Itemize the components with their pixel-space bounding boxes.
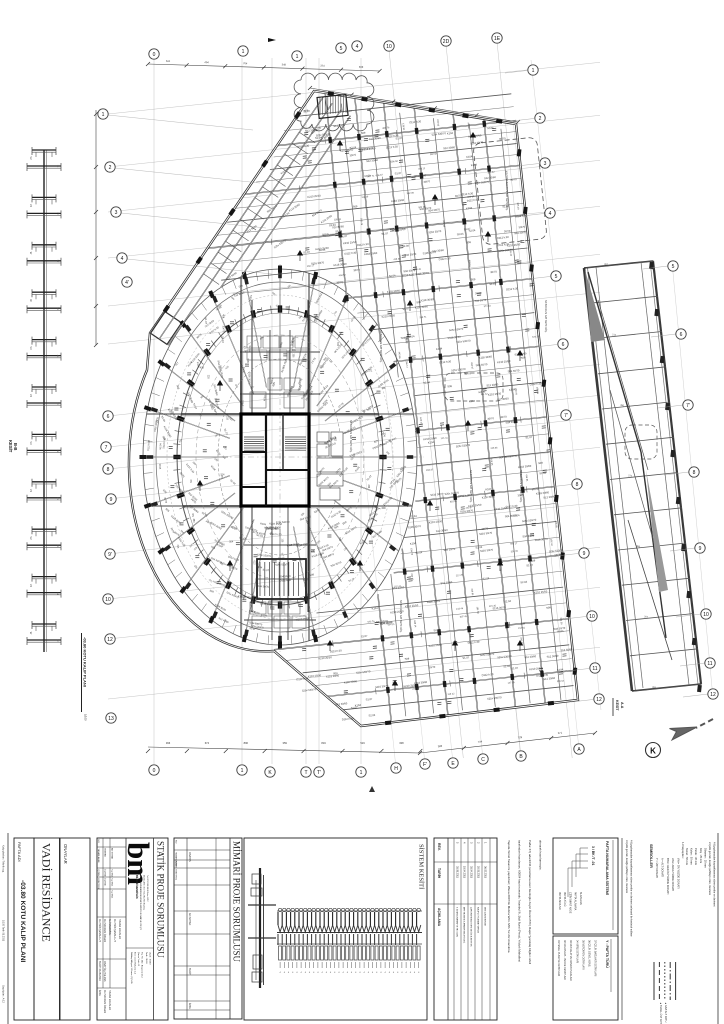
svg-text:12: 12 xyxy=(710,692,716,698)
svg-text:S1.07: S1.07 xyxy=(243,346,246,353)
svg-text:6: 6 xyxy=(562,342,565,348)
svg-text:-03.80 KOTU KALIP PLANI: -03.80 KOTU KALIP PLANI xyxy=(19,880,26,962)
svg-text:BİLİM MÜHENDİSLİK: BİLİM MÜHENDİSLİK xyxy=(135,875,138,899)
svg-text:S1.07: S1.07 xyxy=(511,666,519,671)
svg-text:öYö= ÖN YÜZDE DONATI: öYö= ÖN YÜZDE DONATI xyxy=(677,858,681,889)
svg-text:TARİH: TARİH xyxy=(188,968,191,975)
svg-text:VADİ RESİDANCE: VADİ RESİDANCE xyxy=(40,843,54,942)
svg-text:9: 9 xyxy=(583,551,586,557)
svg-text:KESİT: KESİT xyxy=(615,700,619,711)
svg-text:03.04.2013: 03.04.2013 xyxy=(470,866,473,879)
svg-text:Sayı/çizim : A-12: Sayı/çizim : A-12 xyxy=(2,985,5,1003)
svg-text:K104: K104 xyxy=(436,346,443,351)
svg-text:1: 1 xyxy=(241,768,244,774)
svg-text:8: 8 xyxy=(693,470,696,476)
svg-text:K104: K104 xyxy=(371,606,378,611)
svg-text:6: 6 xyxy=(680,332,683,338)
svg-text:MİMARİ PROJE SORUMLUSU: MİMARİ PROJE SORUMLUSU xyxy=(232,841,242,963)
svg-text:10: 10 xyxy=(589,614,595,620)
svg-text:NO: NO xyxy=(175,840,177,844)
svg-text:30/70: 30/70 xyxy=(336,280,343,285)
svg-text:S2.04: S2.04 xyxy=(368,713,376,718)
svg-text:30.03.2013: 30.03.2013 xyxy=(477,866,480,879)
svg-text:STATİK PROJE SORUMLUSU: STATİK PROJE SORUMLUSU xyxy=(156,841,166,958)
svg-text:Dikilitaş Mah. Eren Sok. No:26: Dikilitaş Mah. Eren Sok. No:26/1 Beşikta… xyxy=(143,875,146,910)
svg-text:A = ALT DONATI: A = ALT DONATI xyxy=(660,858,664,878)
svg-text:S1.07: S1.07 xyxy=(526,563,534,568)
svg-text:Tg. Müh.: Tg. Müh. xyxy=(111,890,113,899)
svg-text:S2 BODRUM KAT 30/70 DÖŞ.: S2 BODRUM KAT 30/70 DÖŞ. xyxy=(399,600,402,633)
svg-text:S1.07: S1.07 xyxy=(462,655,470,660)
svg-text:ONAYAN: ONAYAN xyxy=(188,852,191,862)
svg-text:5: 5 xyxy=(555,274,558,280)
svg-text:1: 1 xyxy=(532,68,535,74)
svg-text:S2 BODRUM KAT 30/70 DÖŞ.: S2 BODRUM KAT 30/70 DÖŞ. xyxy=(469,470,472,503)
svg-text:525x 530/70: 525x 530/70 xyxy=(275,563,289,566)
svg-text:359: 359 xyxy=(283,741,288,745)
svg-text:7': 7' xyxy=(686,403,690,409)
svg-text:S2.04: S2.04 xyxy=(335,229,343,234)
svg-text:4-Uygulamadan kaynaklanması sü: 4-Uygulamadan kaynaklanması süren yerlit… xyxy=(713,842,717,907)
svg-text:tarafından hazırlanan, 60004: tarafından hazırlanan, 60004 kayıt numar… xyxy=(518,840,523,962)
svg-text:İnş.Müh.: İnş.Müh. xyxy=(104,878,107,887)
svg-text:7: 7 xyxy=(105,445,108,451)
svg-text:06 ÇELİK GENEL KONS.: 06 ÇELİK GENEL KONS. xyxy=(588,940,591,967)
svg-text:KONTROL: KONTROL xyxy=(97,879,99,890)
svg-text:HAKAN ERENLER: HAKAN ERENLER xyxy=(108,990,111,1010)
svg-text:AD SOYAD: AD SOYAD xyxy=(188,913,191,925)
svg-text:30/70: 30/70 xyxy=(423,179,430,184)
svg-text:K: K xyxy=(650,747,656,756)
svg-text:MRT.TA KAVŞ.K ARMUR KELESİ DEĞ: MRT.TA KAVŞ.K ARMUR KELESİ DEĞ. xyxy=(463,907,466,944)
svg-text:İnş.Müh.: İnş.Müh. xyxy=(104,869,107,878)
svg-text:S1.07: S1.07 xyxy=(381,231,389,236)
svg-text:338: 338 xyxy=(399,741,404,745)
svg-text:Döşeme : 20 mm: Döşeme : 20 mm xyxy=(703,848,707,868)
svg-text:S1.07: S1.07 xyxy=(402,306,410,311)
svg-text:ALİ SAMAVİOL: ALİ SAMAVİOL xyxy=(108,919,111,936)
svg-text:S1.07: S1.07 xyxy=(525,435,533,440)
svg-text:S1.07: S1.07 xyxy=(489,281,497,286)
svg-text:S1.07: S1.07 xyxy=(395,136,403,141)
svg-text:PAFTA NUMARA: PAFTA NUMARA xyxy=(574,892,577,911)
svg-text:896: 896 xyxy=(244,741,249,745)
svg-text:S2.04: S2.04 xyxy=(433,628,441,633)
svg-text:ÇİZEN: ÇİZEN xyxy=(175,862,178,869)
svg-text:S2.04: S2.04 xyxy=(318,247,326,252)
svg-text:13: 13 xyxy=(108,716,114,722)
svg-text:Kiriş : 25 mm: Kiriş : 25 mm xyxy=(699,848,703,863)
svg-text:ANKARA MÜHENDİSLİK HİZMETLERİ: ANKARA MÜHENDİSLİK HİZMETLERİ PROJE SAN.… xyxy=(139,875,142,930)
svg-text:S2.04: S2.04 xyxy=(410,514,418,519)
svg-text:S116 30/70: S116 30/70 xyxy=(248,372,251,385)
svg-text:K104: K104 xyxy=(485,487,492,492)
svg-text:S2.04: S2.04 xyxy=(503,664,511,669)
svg-text:K104: K104 xyxy=(410,541,417,546)
svg-text:1/100 Tarih 05.2013: 1/100 Tarih 05.2013 xyxy=(2,920,5,942)
svg-text:9: 9 xyxy=(699,546,702,552)
svg-text:03.08.2011: 03.08.2011 xyxy=(456,866,459,878)
svg-text:V2: V2 xyxy=(29,536,33,540)
svg-text:Perde : 30 mm: Perde : 30 mm xyxy=(694,848,698,865)
svg-text:7': 7' xyxy=(564,413,568,419)
svg-text:S1.07: S1.07 xyxy=(394,171,402,176)
svg-text:12: 12 xyxy=(596,697,602,703)
svg-text:D112 h:30: D112 h:30 xyxy=(280,579,292,582)
svg-text:S04 30/70: S04 30/70 xyxy=(270,526,282,530)
svg-text:MUHARREM ÖZGEN: MUHARREM ÖZGEN xyxy=(103,919,106,943)
svg-text:519: 519 xyxy=(360,741,365,745)
svg-text:03 KAT KALIP VE DONATI PLANLAR: 03 KAT KALIP VE DONATI PLANLARI xyxy=(569,940,572,981)
svg-text:K104: K104 xyxy=(487,126,494,131)
svg-text:704: 704 xyxy=(243,61,248,65)
svg-text:KESİT: KESİT xyxy=(8,440,13,453)
svg-text:DNŞ ÇALIŞI AYDDE: DNŞ ÇALIŞI AYDDE xyxy=(484,907,487,927)
svg-text:Dikilitaş Mülgazi 1 Demor (Y): Dikilitaş Mülgazi 1 Demor (Y) 5-85 xyxy=(130,952,133,984)
svg-text:Eren Özen Bahçesi 1+1: Eren Özen Bahçesi 1+1 xyxy=(134,952,137,975)
svg-text:S2.04: S2.04 xyxy=(520,580,528,585)
svg-text:1E: 1E xyxy=(494,36,501,42)
svg-text:K104: K104 xyxy=(355,703,362,708)
svg-text:S2.04: S2.04 xyxy=(248,345,252,352)
svg-text:1: 1 xyxy=(296,54,299,60)
svg-text:S2 BODRUM KAT 30/70 DÖŞ.: S2 BODRUM KAT 30/70 DÖŞ. xyxy=(505,178,508,211)
svg-text:30/70: 30/70 xyxy=(510,177,517,182)
svg-text:KONTROL: KONTROL xyxy=(175,870,177,881)
svg-text:S1.07: S1.07 xyxy=(345,109,353,114)
svg-text:Kolon : 30 mm: Kolon : 30 mm xyxy=(690,848,694,865)
svg-text:MUHSİN ŞENBULUT: MUHSİN ŞENBULUT xyxy=(113,919,116,942)
svg-text:5 İLEM DONANIM VE HK OLDU: 5 İLEM DONANIM VE HK OLDU xyxy=(456,907,459,938)
svg-text:19.04.2013: 19.04.2013 xyxy=(463,866,466,879)
svg-text:ONAYAN: ONAYAN xyxy=(104,848,107,857)
svg-text:S2.04: S2.04 xyxy=(457,232,465,237)
svg-text:8: 8 xyxy=(576,482,579,488)
svg-text:V3: V3 xyxy=(29,489,33,493)
svg-text:S1.07: S1.07 xyxy=(464,227,472,232)
svg-text:-03.80 KOTU KALIP PLANI: -03.80 KOTU KALIP PLANI xyxy=(83,637,88,687)
svg-text:NO: NO xyxy=(97,840,99,844)
svg-text:İMZA: İMZA xyxy=(98,990,101,996)
svg-text:Çimen Yedi. 42: Çimen Yedi. 42 xyxy=(137,952,139,967)
svg-text:S2.04: S2.04 xyxy=(415,550,423,555)
svg-text:11: 11 xyxy=(592,666,597,672)
svg-text:S04 30/70: S04 30/70 xyxy=(279,575,291,578)
svg-text:V2: V2 xyxy=(29,394,33,398)
svg-text:V2: V2 xyxy=(29,156,33,160)
svg-text:01 TEMEL PLANI VE DETAYLARI: 01 TEMEL PLANI VE DETAYLARI xyxy=(557,940,560,977)
svg-text:◄ TEMEL ÜST KOTU: ◄ TEMEL ÜST KOTU xyxy=(659,1002,662,1024)
svg-text:3-Çelik gevrek, kesiğe şaftila: 3-Çelik gevrek, kesiğe şaftilaçtı oran, … xyxy=(625,840,629,894)
svg-text:PAFTA TÜRÜ: PAFTA TÜRÜ xyxy=(563,892,566,907)
svg-text:PAFTA ADI: PAFTA ADI xyxy=(17,842,22,862)
svg-text:1/100: 1/100 xyxy=(84,714,88,721)
svg-text:Y = ÜST DONATI: Y = ÜST DONATI xyxy=(655,858,659,878)
svg-text:S1.07: S1.07 xyxy=(221,336,224,343)
svg-text:T: T xyxy=(304,770,307,776)
svg-text:MUHSİN ŞENBULUT: MUHSİN ŞENBULUT xyxy=(98,919,101,942)
svg-text:F': F' xyxy=(423,762,427,768)
svg-text:AD SOYAD: AD SOYAD xyxy=(111,848,114,860)
svg-text:ONAYLAR: ONAYLAR xyxy=(63,844,68,864)
svg-text:Y : PAFTA TÜRÜ: Y : PAFTA TÜRÜ xyxy=(605,940,610,968)
svg-text:Tg. Müh.: Tg. Müh. xyxy=(111,869,113,878)
svg-text:REV.: REV. xyxy=(437,843,441,851)
svg-text:2-Çelik gevrek, kesiğe şaftila: 2-Çelik gevrek, kesiğe şaftilaçtı oran, … xyxy=(708,842,712,896)
svg-text:30/70: 30/70 xyxy=(242,367,245,374)
svg-text:349: 349 xyxy=(282,62,287,66)
svg-text:4: 4 xyxy=(121,256,124,262)
svg-text:K104: K104 xyxy=(466,206,473,211)
svg-text:S1.07: S1.07 xyxy=(361,634,369,639)
svg-text:30/70: 30/70 xyxy=(518,225,525,230)
svg-text:İMZA: İMZA xyxy=(188,1003,191,1009)
svg-text:S1.07: S1.07 xyxy=(278,557,285,560)
svg-text:MUHARREM ÖZGEN: MUHARREM ÖZGEN xyxy=(103,990,106,1014)
svg-text:aYa= ARKA YÜZDE DONATI: aYa= ARKA YÜZDE DONATI xyxy=(671,858,675,892)
svg-text:10: 10 xyxy=(703,612,709,618)
svg-text:30/70: 30/70 xyxy=(429,665,436,670)
svg-text:0: 0 xyxy=(153,768,156,774)
svg-text:HAKAN ERENLER: HAKAN ERENLER xyxy=(118,919,121,939)
svg-text:S2.04: S2.04 xyxy=(389,273,397,278)
svg-text:05 MERDİVEN DETAYLARI: 05 MERDİVEN DETAYLARI xyxy=(581,940,584,970)
svg-text:S2.04: S2.04 xyxy=(423,380,431,385)
svg-text:10: 10 xyxy=(105,597,111,603)
svg-text:1-Paspayları :: 1-Paspayları : xyxy=(681,842,685,859)
svg-text:S2.04: S2.04 xyxy=(504,599,512,604)
svg-text:S09: S09 xyxy=(246,358,249,363)
svg-text:30/70: 30/70 xyxy=(464,371,471,376)
svg-text:30/70: 30/70 xyxy=(487,416,494,421)
svg-text:12: 12 xyxy=(107,637,113,643)
svg-text:T': T' xyxy=(317,770,321,776)
svg-text:B-B: B-B xyxy=(13,443,18,450)
svg-text:ÇAPORA SKELE KIRŞ DEĞİŞ.A KEST: ÇAPORA SKELE KIRŞ DEĞİŞ.A KEST EK xyxy=(470,907,473,947)
svg-text:V3: V3 xyxy=(29,441,33,445)
svg-text:30/70: 30/70 xyxy=(222,326,225,333)
svg-text:K104: K104 xyxy=(466,154,473,159)
svg-text:454: 454 xyxy=(204,60,209,64)
svg-text:S2 BODRUM KAT 30/70 DÖŞ.: S2 BODRUM KAT 30/70 DÖŞ. xyxy=(519,470,522,503)
svg-text:30/70: 30/70 xyxy=(430,151,437,156)
svg-text:S2 BODRUM KAT 30/70 DÖŞ.: S2 BODRUM KAT 30/70 DÖŞ. xyxy=(544,300,547,333)
svg-text:06.02.2013: 06.02.2013 xyxy=(484,866,487,879)
svg-text:SEMBOLLER: SEMBOLLER xyxy=(649,844,653,868)
svg-text:ONAY İnş.Yük.Müh.: ONAY İnş.Yük.Müh. xyxy=(103,961,106,983)
svg-text:1: 1 xyxy=(242,49,245,55)
svg-text:30/70: 30/70 xyxy=(490,269,497,274)
svg-text:5: 5 xyxy=(672,264,675,270)
svg-text:1: 1 xyxy=(102,112,105,118)
svg-text:10: 10 xyxy=(386,44,392,50)
svg-text:3: 3 xyxy=(544,161,547,167)
svg-text:4-Uygulamadan kaynaklanması sü: 4-Uygulamadan kaynaklanması süren yerlit… xyxy=(630,840,634,937)
svg-text:Pafta: 67) ada:2246 (arozlam: Pafta: 67) ada:2246 (arozlama eseri Geol… xyxy=(528,840,532,964)
svg-text:TASARLAYAN: TASARLAYAN xyxy=(97,849,100,863)
svg-text:S2.04: S2.04 xyxy=(329,223,337,228)
svg-text:5: 5 xyxy=(340,46,343,52)
svg-text:631: 631 xyxy=(166,59,171,63)
svg-text:C: C xyxy=(481,757,485,763)
svg-text:V2: V2 xyxy=(29,204,33,208)
svg-text:◄ KAZI ALT KOTU: ◄ KAZI ALT KOTU xyxy=(664,1002,667,1023)
svg-text:A-A: A-A xyxy=(620,702,624,709)
svg-text:PAFTA SIRA NO: PAFTA SIRA NO xyxy=(558,892,561,910)
svg-text:2D: 2D xyxy=(443,39,450,45)
svg-text:TARİH 03.05.2013: TARİH 03.05.2013 xyxy=(98,961,101,981)
svg-text:9': 9' xyxy=(108,552,112,558)
svg-text:396: 396 xyxy=(166,741,171,745)
svg-text:9: 9 xyxy=(110,497,113,503)
svg-text:ÇİZEN: ÇİZEN xyxy=(97,870,100,877)
svg-text:02 KOLON APL. PERDE DETAYLARI: 02 KOLON APL. PERDE DETAYLARI xyxy=(563,940,566,980)
svg-text:4: 4 xyxy=(549,211,552,217)
svg-text:30/70: 30/70 xyxy=(353,268,360,273)
svg-text:BLK/BLEVE: BLK/BLEVE xyxy=(579,892,582,905)
svg-text:SİSTEM KESİTİ: SİSTEM KESİTİ xyxy=(418,844,425,889)
svg-text:K104: K104 xyxy=(447,131,454,136)
svg-text:Tlş. Yln. Dkn. Başacım 34-4: Tlş. Yln. Dkn. Başacım 34-4 xyxy=(141,952,143,979)
svg-text:4: 4 xyxy=(356,44,359,50)
svg-text:6: 6 xyxy=(107,414,110,420)
svg-text:819: 819 xyxy=(321,741,326,745)
svg-text:TARİH: TARİH xyxy=(437,868,441,879)
svg-text:K104: K104 xyxy=(557,667,564,672)
svg-text:30/70: 30/70 xyxy=(499,136,506,141)
svg-text:07 ÇELİK BAĞLANTI DETAYLARI: 07 ÇELİK BAĞLANTI DETAYLARI xyxy=(594,940,597,977)
svg-text:11: 11 xyxy=(707,661,712,667)
svg-text:S1.07: S1.07 xyxy=(365,697,373,702)
svg-text:S2.04: S2.04 xyxy=(482,576,490,581)
svg-text:374: 374 xyxy=(320,64,325,68)
svg-text:K104: K104 xyxy=(471,162,478,167)
svg-text:Ölçek : 5/100: Ölçek : 5/100 xyxy=(149,952,152,965)
svg-text:alınarak hazırlanmıştır.: alınarak hazırlanmıştır. xyxy=(539,840,543,871)
svg-text:S1.07: S1.07 xyxy=(303,250,311,255)
svg-text:Kalıp planları / Teknik uyg.: Kalıp planları / Teknik uyg. xyxy=(2,845,5,873)
svg-text:H: H xyxy=(394,766,398,772)
svg-text:S2.04: S2.04 xyxy=(539,471,547,476)
svg-text:K104: K104 xyxy=(158,464,161,470)
svg-text:AÇIKLAMA: AÇIKLAMA xyxy=(437,908,441,927)
svg-text:2: 2 xyxy=(539,116,542,122)
svg-text:Tarih : 08.60: Tarih : 08.60 xyxy=(145,952,148,964)
svg-text:Yapıda Temel Tasarımı yapılırk: Yapıda Temel Tasarımı yapılırken; Wsea 2… xyxy=(507,840,511,953)
svg-text:674: 674 xyxy=(205,741,210,745)
svg-text:PAFTA NUMARALAMA SİSTEMİ: PAFTA NUMARALAMA SİSTEMİ xyxy=(605,841,609,895)
svg-text:30/70: 30/70 xyxy=(481,526,488,531)
svg-text:3: 3 xyxy=(115,210,118,216)
svg-text:V2: V2 xyxy=(29,584,33,588)
svg-text:04 KİRİŞ DETAYLARI: 04 KİRİŞ DETAYLARI xyxy=(575,940,578,963)
svg-text:Tel: 0212 000 00 00 Faks: 021: Tel: 0212 000 00 00 Faks: 0212 xyxy=(146,875,148,902)
svg-text:S2 BODRUM KAT 30/70 DÖŞ.: S2 BODRUM KAT 30/70 DÖŞ. xyxy=(379,330,382,363)
svg-text:ÇİZİM BİANT KADE: ÇİZİM BİANT KADE xyxy=(568,892,571,914)
svg-text:30/70: 30/70 xyxy=(500,414,507,419)
svg-text:4': 4' xyxy=(125,280,129,286)
svg-text:2: 2 xyxy=(109,165,112,171)
svg-text:1: 1 xyxy=(360,770,363,776)
svg-text:K104: K104 xyxy=(469,399,476,404)
svg-text:Tg. Müh.: Tg. Müh. xyxy=(111,878,113,887)
svg-text:0: 0 xyxy=(153,52,156,58)
svg-text:K104: K104 xyxy=(513,513,520,518)
svg-text:30/70: 30/70 xyxy=(349,153,356,158)
svg-text:Temel : 50 mm: Temel : 50 mm xyxy=(685,848,689,865)
svg-text:V3: V3 xyxy=(29,346,33,350)
svg-text:3 / BK /T -01: 3 / BK /T -01 xyxy=(591,846,595,866)
svg-text:S2 BODRUM KAT 30/70 DÖŞ.: S2 BODRUM KAT 30/70 DÖŞ. xyxy=(349,420,352,453)
svg-text:KALIPLI İYİLEŞME YAPILDI: KALIPLI İYİLEŞME YAPILDI xyxy=(477,907,480,934)
svg-text:K104: K104 xyxy=(428,440,435,445)
svg-text:8: 8 xyxy=(107,467,110,473)
svg-text:30/70: 30/70 xyxy=(504,229,511,234)
svg-text:848: 848 xyxy=(359,65,364,69)
